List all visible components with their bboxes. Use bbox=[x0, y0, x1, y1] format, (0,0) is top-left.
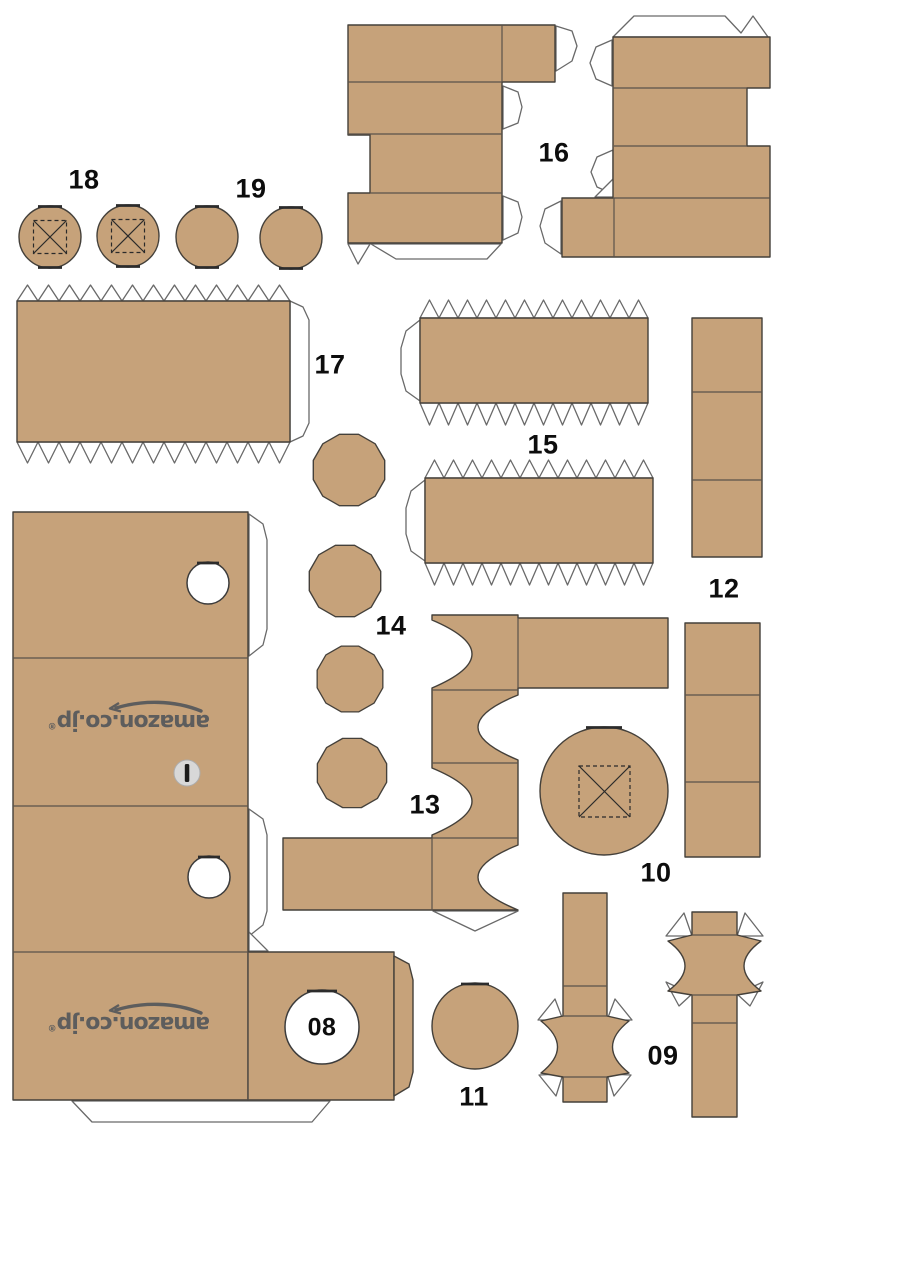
glue-teeth bbox=[420, 403, 648, 425]
label-piece-16: 16 bbox=[538, 138, 569, 169]
label-piece-08: 08 bbox=[308, 1014, 337, 1043]
fold-tab bbox=[590, 40, 612, 86]
amazon-logo-print: amazon.co.jp® bbox=[50, 700, 210, 736]
piece-12-strip-lower bbox=[685, 623, 760, 857]
fold-tab bbox=[433, 911, 518, 931]
glue-teeth bbox=[425, 460, 653, 478]
piece-14-disc bbox=[313, 434, 384, 505]
fold-tab bbox=[539, 1074, 563, 1096]
fold-tab bbox=[503, 86, 522, 129]
fold-tab bbox=[290, 301, 309, 442]
fold-tab bbox=[666, 913, 692, 936]
piece-14-disc bbox=[317, 646, 383, 712]
glue-teeth bbox=[17, 442, 290, 463]
glue-teeth bbox=[425, 563, 653, 585]
label-piece-13: 13 bbox=[409, 790, 440, 821]
piece-09-right-net bbox=[668, 912, 761, 1117]
label-piece-15: 15 bbox=[527, 430, 558, 461]
piece-12-strip-upper bbox=[692, 318, 762, 557]
label-piece-19: 19 bbox=[235, 174, 266, 205]
papercraft-template-sheet: 18 19 16 17 15 12 14 13 10 08 11 09 amaz… bbox=[0, 0, 900, 1286]
amazon-logo-print: amazon.co.jp® bbox=[50, 1002, 210, 1038]
fold-tab bbox=[406, 480, 425, 561]
piece-14-disc bbox=[317, 738, 386, 807]
fold-tab bbox=[401, 320, 420, 401]
fold-tab bbox=[371, 244, 501, 259]
fold-tab bbox=[72, 1101, 330, 1122]
cardboard-pieces-layer bbox=[13, 25, 770, 1117]
label-piece-12: 12 bbox=[708, 574, 739, 605]
fold-tab bbox=[540, 201, 561, 254]
punch-hole bbox=[187, 562, 229, 604]
fold-tab bbox=[556, 26, 577, 71]
registered-mark: ® bbox=[49, 720, 57, 730]
piece-19-disc bbox=[176, 206, 238, 268]
fold-tab bbox=[249, 932, 268, 951]
label-piece-14: 14 bbox=[375, 611, 406, 642]
fold-tab bbox=[607, 1074, 631, 1096]
fold-tab bbox=[348, 244, 370, 264]
glue-teeth bbox=[420, 300, 648, 318]
coin-slot-button bbox=[174, 760, 200, 786]
piece-08-side-tab bbox=[394, 956, 413, 1096]
fold-tab bbox=[249, 809, 267, 936]
amazon-logo-text: amazon.co.jp® bbox=[50, 1012, 210, 1038]
label-piece-11: 11 bbox=[459, 1082, 489, 1113]
piece-15-band-lower bbox=[425, 478, 653, 563]
label-piece-09: 09 bbox=[647, 1041, 678, 1072]
fold-tab bbox=[737, 913, 763, 936]
piece-11-disc bbox=[432, 983, 518, 1069]
glue-teeth bbox=[17, 285, 290, 301]
amazon-logo-text: amazon.co.jp® bbox=[50, 710, 210, 736]
label-piece-18: 18 bbox=[68, 165, 99, 196]
piece-14-disc bbox=[309, 545, 380, 616]
label-piece-10: 10 bbox=[640, 858, 671, 889]
registered-mark: ® bbox=[49, 1022, 57, 1032]
fold-tab bbox=[249, 514, 267, 656]
template-sheet-graphic bbox=[0, 0, 900, 1286]
piece-19-disc bbox=[260, 207, 322, 269]
punch-hole bbox=[188, 856, 230, 898]
fold-tab bbox=[613, 16, 768, 37]
fold-tab bbox=[503, 196, 522, 240]
piece-15-band-upper bbox=[420, 318, 648, 403]
label-piece-17: 17 bbox=[314, 350, 345, 381]
piece-09-left-net bbox=[541, 893, 629, 1102]
piece-17-band bbox=[17, 301, 290, 442]
